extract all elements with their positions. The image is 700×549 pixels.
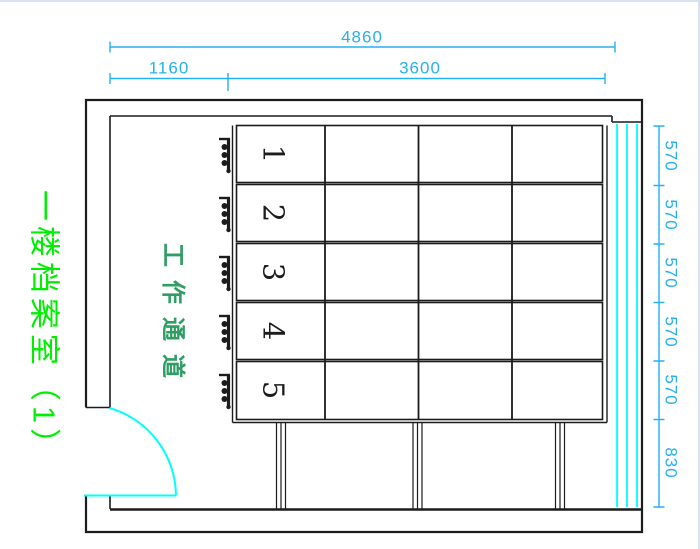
drawing-title: 一楼档案室（1） (29, 190, 60, 464)
window-strip (617, 124, 637, 507)
crank-handle-icon (219, 257, 231, 291)
floor-rail (413, 423, 422, 509)
shelf-row-number-5: 5 (259, 381, 288, 399)
shelf-row (237, 244, 603, 301)
shelf-row-number-4: 4 (259, 322, 288, 340)
dim-label-4860: 4860 (341, 29, 383, 46)
door-swing (84, 408, 176, 496)
shelf-row (237, 303, 603, 360)
floor-rail (277, 423, 286, 509)
shelf-row-number-1: 1 (259, 145, 288, 163)
shelf-bay-dividers (325, 126, 512, 420)
floor-rails (277, 423, 565, 509)
shelf-row-number-2: 2 (259, 204, 288, 222)
shelf-row (237, 362, 603, 420)
crank-handles (219, 139, 231, 409)
dim-label-570-5: 570 (663, 374, 680, 405)
crank-handle-icon (219, 139, 231, 173)
door-arc (110, 408, 177, 496)
crank-handle-icon (219, 198, 231, 232)
corridor-label: 工作通道 (160, 243, 184, 391)
dim-label-3600: 3600 (399, 60, 441, 77)
dim-label-570-1: 570 (663, 140, 680, 171)
dim-label-570-2: 570 (663, 199, 680, 230)
shelf-row (237, 185, 603, 242)
dim-label-570-4: 570 (663, 316, 680, 347)
shelf-row (237, 126, 603, 183)
dim-label-1160: 1160 (149, 60, 190, 77)
dim-label-830: 830 (663, 447, 680, 478)
dim-label-570-3: 570 (663, 257, 680, 288)
floor-rail (556, 423, 565, 509)
plan-svg (0, 0, 700, 549)
crank-handle-icon (219, 375, 231, 409)
shelf-row-number-3: 3 (259, 263, 288, 281)
crank-handle-icon (219, 316, 231, 350)
